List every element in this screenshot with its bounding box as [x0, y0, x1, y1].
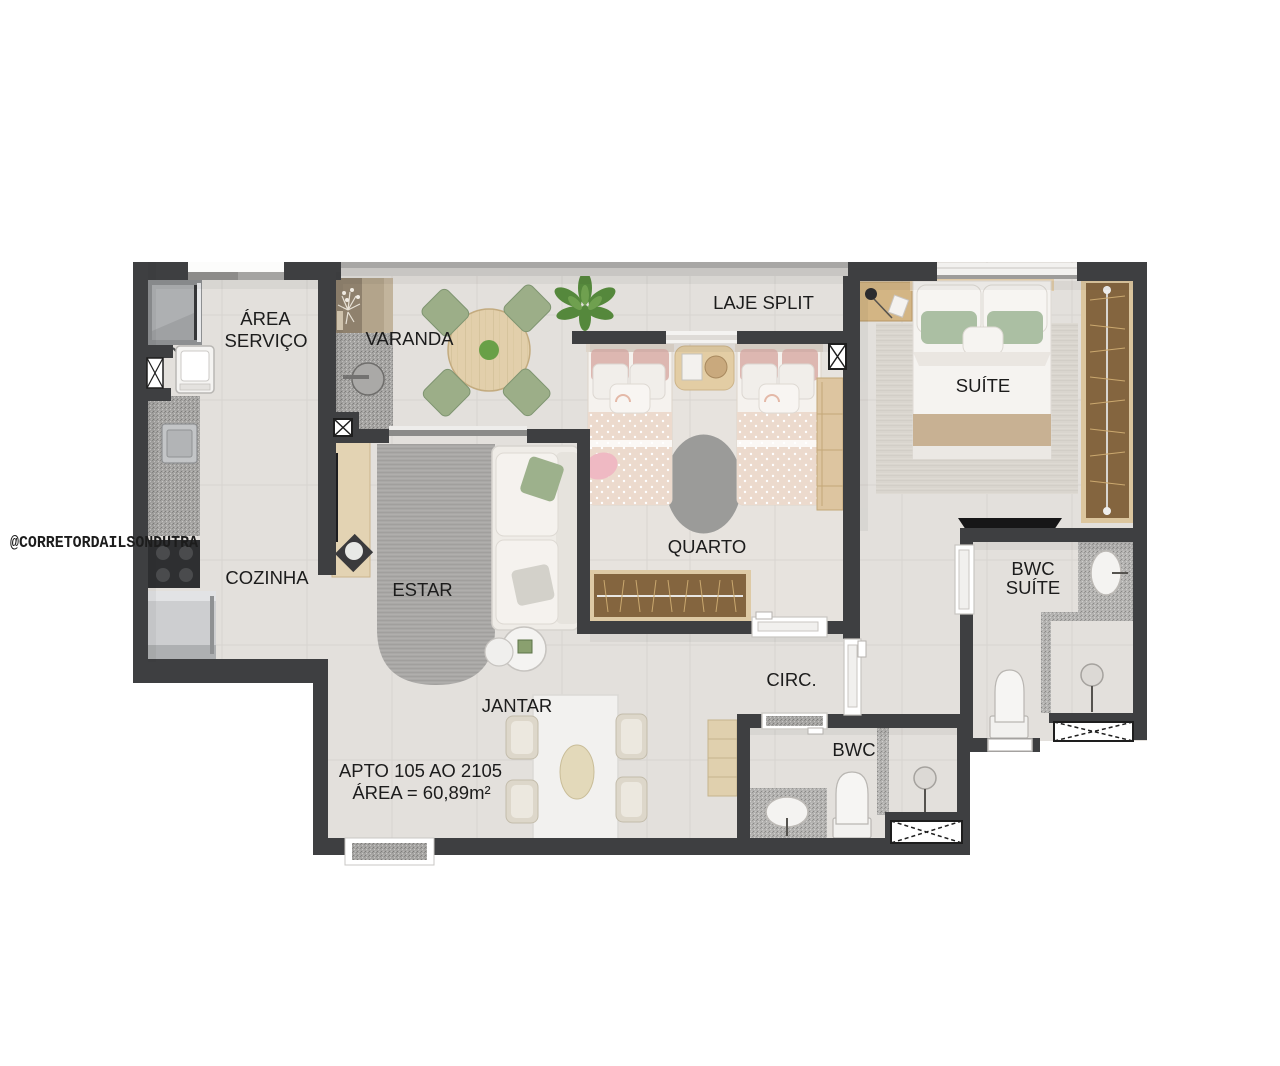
- svg-text:SUÍTE: SUÍTE: [1006, 577, 1060, 598]
- svg-text:CIRC.: CIRC.: [766, 669, 816, 690]
- svg-text:ÁREA = 60,89m²: ÁREA = 60,89m²: [352, 782, 490, 803]
- svg-text:LAJE SPLIT: LAJE SPLIT: [713, 292, 814, 313]
- svg-text:@CORRETORDAILSONDUTRA: @CORRETORDAILSONDUTRA: [10, 534, 199, 553]
- svg-text:ESTAR: ESTAR: [392, 579, 452, 600]
- svg-text:VARANDA: VARANDA: [365, 328, 454, 349]
- svg-text:BWC: BWC: [1011, 558, 1054, 579]
- svg-text:APTO 105 AO 2105: APTO 105 AO 2105: [339, 760, 502, 781]
- svg-text:QUARTO: QUARTO: [668, 536, 746, 557]
- svg-text:SUÍTE: SUÍTE: [956, 375, 1010, 396]
- svg-text:ÁREA: ÁREA: [240, 308, 291, 329]
- svg-text:BWC: BWC: [832, 739, 875, 760]
- svg-text:JANTAR: JANTAR: [482, 695, 553, 716]
- svg-text:SERVIÇO: SERVIÇO: [225, 330, 308, 351]
- svg-text:COZINHA: COZINHA: [225, 567, 309, 588]
